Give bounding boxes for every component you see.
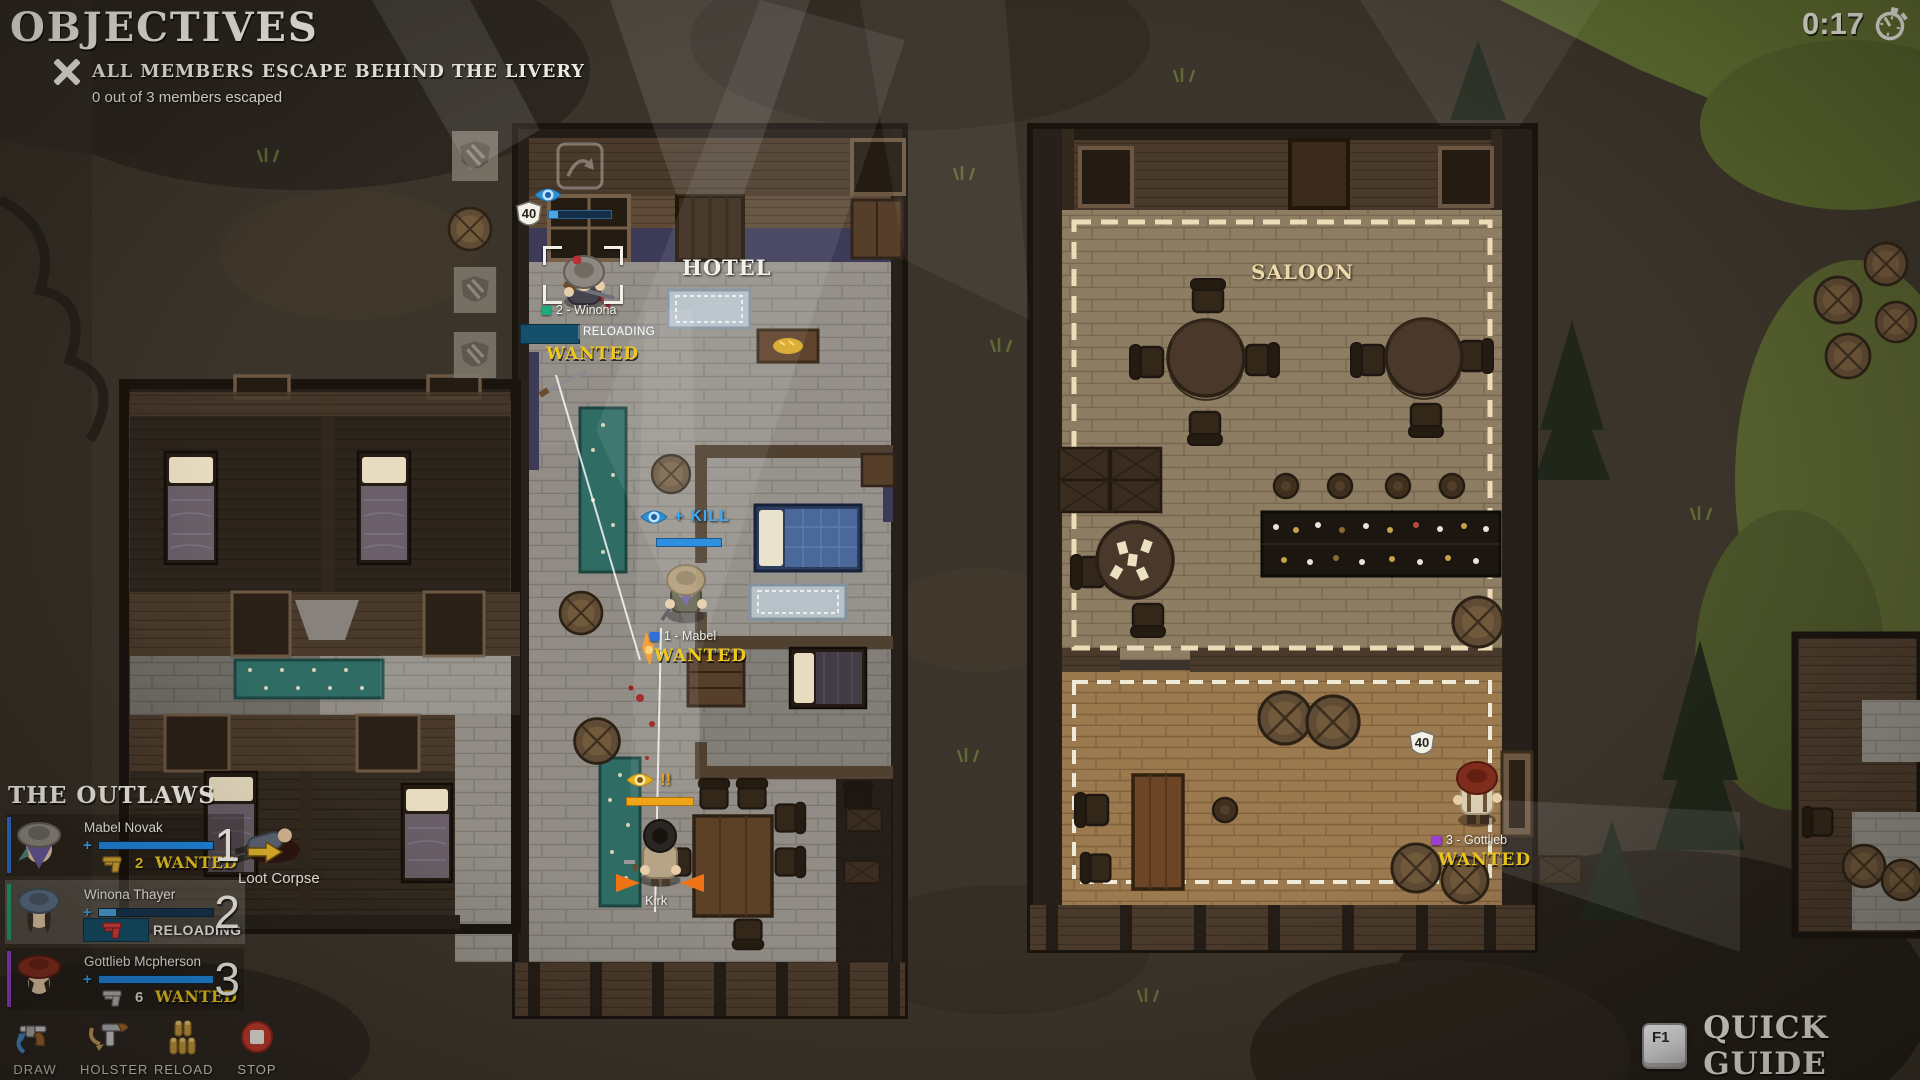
f1-key[interactable]: F1 xyxy=(1642,1023,1687,1069)
stopwatch-icon xyxy=(1872,6,1908,42)
kill-eye-icon xyxy=(640,508,668,526)
draw-icon xyxy=(12,1020,58,1056)
objectives-title: OBJECTIVES xyxy=(10,4,585,51)
holster-button[interactable]: HOLSTER xyxy=(80,1020,138,1077)
selection-brackets xyxy=(543,246,623,304)
member-name: Winona Thayer xyxy=(84,887,175,902)
objective-text: ALL MEMBERS ESCAPE BEHIND THE LIVERY xyxy=(92,62,585,82)
edge-building xyxy=(1795,635,1920,935)
mabel-nametag-text: 1 - Mabel xyxy=(664,629,716,643)
winona-nametag: 2 - Winona xyxy=(542,303,616,317)
reload-icon xyxy=(160,1020,206,1056)
draw-button[interactable]: DRAW xyxy=(6,1020,64,1077)
objective-progress: 0 out of 3 members escaped xyxy=(92,89,585,106)
quick-guide-label: QUICK GUIDE xyxy=(1703,1010,1920,1080)
hotel-porch xyxy=(515,962,905,1016)
loot-corpse-label[interactable]: Loot Corpse xyxy=(238,870,320,887)
squad-member-mabel[interactable]: Mabel Novak + 2 WANTED 1 xyxy=(6,814,244,876)
squad-member-winona[interactable]: Winona Thayer + RELOADING 2 xyxy=(6,881,244,943)
member-color-bar xyxy=(7,884,11,940)
reload-progress-chip xyxy=(83,918,149,942)
member-health-bar xyxy=(98,841,214,850)
round-table xyxy=(1168,320,1244,400)
health-plus: + xyxy=(83,971,92,988)
saloon-window xyxy=(1440,148,1492,206)
objective-x-icon xyxy=(54,59,80,85)
saloon-window xyxy=(1080,148,1132,206)
game-world xyxy=(0,0,1920,1080)
gottlieb-nametag-text: 3 - Gottlieb xyxy=(1446,833,1507,847)
objectives-panel: OBJECTIVES ALL MEMBERS ESCAPE BEHIND THE… xyxy=(10,4,585,106)
member-health-bar xyxy=(98,975,214,984)
winona-health-bar xyxy=(548,210,612,219)
reload-button[interactable]: RELOAD xyxy=(154,1020,212,1077)
poker-table xyxy=(1097,522,1173,598)
kirk-bar xyxy=(626,797,694,806)
member-number: 3 xyxy=(214,952,240,1006)
round-table xyxy=(1386,319,1462,399)
hotel-label: HOTEL xyxy=(682,255,772,280)
pistol-icon xyxy=(102,988,130,1008)
mabel-wanted-label: WANTED xyxy=(654,646,747,666)
draw-label: DRAW xyxy=(6,1062,64,1077)
member-ammo: 2 xyxy=(135,855,143,872)
holster-label: HOLSTER xyxy=(80,1062,138,1077)
stop-label: STOP xyxy=(228,1062,286,1077)
timer: 0:17 xyxy=(1802,6,1908,42)
member-health-bar xyxy=(98,908,214,917)
saloon-building xyxy=(1030,126,1581,950)
member-ammo: 6 xyxy=(135,989,143,1006)
bar-counter xyxy=(1262,512,1500,576)
stop-button[interactable]: STOP xyxy=(228,1020,286,1077)
kirk-name-label: Kirk xyxy=(645,893,667,908)
health-plus: + xyxy=(83,837,92,854)
kill-plus: + xyxy=(674,508,684,526)
saloon-door xyxy=(1290,140,1348,208)
wanted-badge-winona: 40 xyxy=(516,201,542,231)
squad-member-gottlieb[interactable]: Gottlieb Mcpherson + 6 WANTED 3 xyxy=(6,948,244,1010)
member-name: Gottlieb Mcpherson xyxy=(84,954,201,969)
kirk-alert-text: !! xyxy=(660,770,671,790)
stop-icon xyxy=(234,1020,280,1056)
kirk-alert: !! xyxy=(626,770,671,790)
squad-title: THE OUTLAWS xyxy=(8,782,244,809)
alert-eye-icon xyxy=(626,771,654,789)
pistol-icon xyxy=(102,854,130,874)
winona-avatar xyxy=(17,886,61,938)
game-screen: HOTEL SALOON 40 2 - Winona RELOADING WAN… xyxy=(0,0,1920,1080)
mabel-nametag: 1 - Mabel xyxy=(650,629,716,643)
long-table xyxy=(1133,775,1183,889)
saloon-porch xyxy=(1030,905,1535,950)
gottlieb-avatar xyxy=(17,953,61,1005)
winona-reload-bar xyxy=(520,324,580,344)
gottlieb-wanted-label: WANTED xyxy=(1438,850,1531,870)
dining-table xyxy=(694,816,772,916)
reload-label: RELOAD xyxy=(154,1062,212,1077)
mabel-action-bar xyxy=(656,538,722,547)
winona-reload-label: RELOADING xyxy=(578,325,660,339)
wanted-badge-gottlieb: 40 xyxy=(1409,730,1435,760)
action-bar: DRAW HOLSTER RELOAD STOP xyxy=(6,1020,286,1077)
timer-value: 0:17 xyxy=(1802,6,1864,42)
member-number: 2 xyxy=(214,885,240,939)
member-name: Mabel Novak xyxy=(84,820,163,835)
kill-label: KILL xyxy=(690,508,730,526)
quick-guide[interactable]: F1 QUICK GUIDE xyxy=(1642,1010,1920,1080)
squad-panel: THE OUTLAWS Mabel Novak + 2 WANTED 1 Win… xyxy=(6,782,244,1010)
member-number: 1 xyxy=(214,818,240,872)
member-color-bar xyxy=(7,817,11,873)
kill-order: + KILL xyxy=(640,508,730,526)
winona-nametag-text: 2 - Winona xyxy=(556,303,616,317)
member-color-bar xyxy=(7,951,11,1007)
mabel-avatar xyxy=(17,819,61,871)
winona-wanted-label: WANTED xyxy=(546,344,639,364)
red-pistol-icon xyxy=(102,920,130,940)
saloon-label: SALOON xyxy=(1251,260,1354,284)
holster-icon xyxy=(86,1020,132,1056)
gottlieb-nametag: 3 - Gottlieb xyxy=(1432,833,1507,847)
